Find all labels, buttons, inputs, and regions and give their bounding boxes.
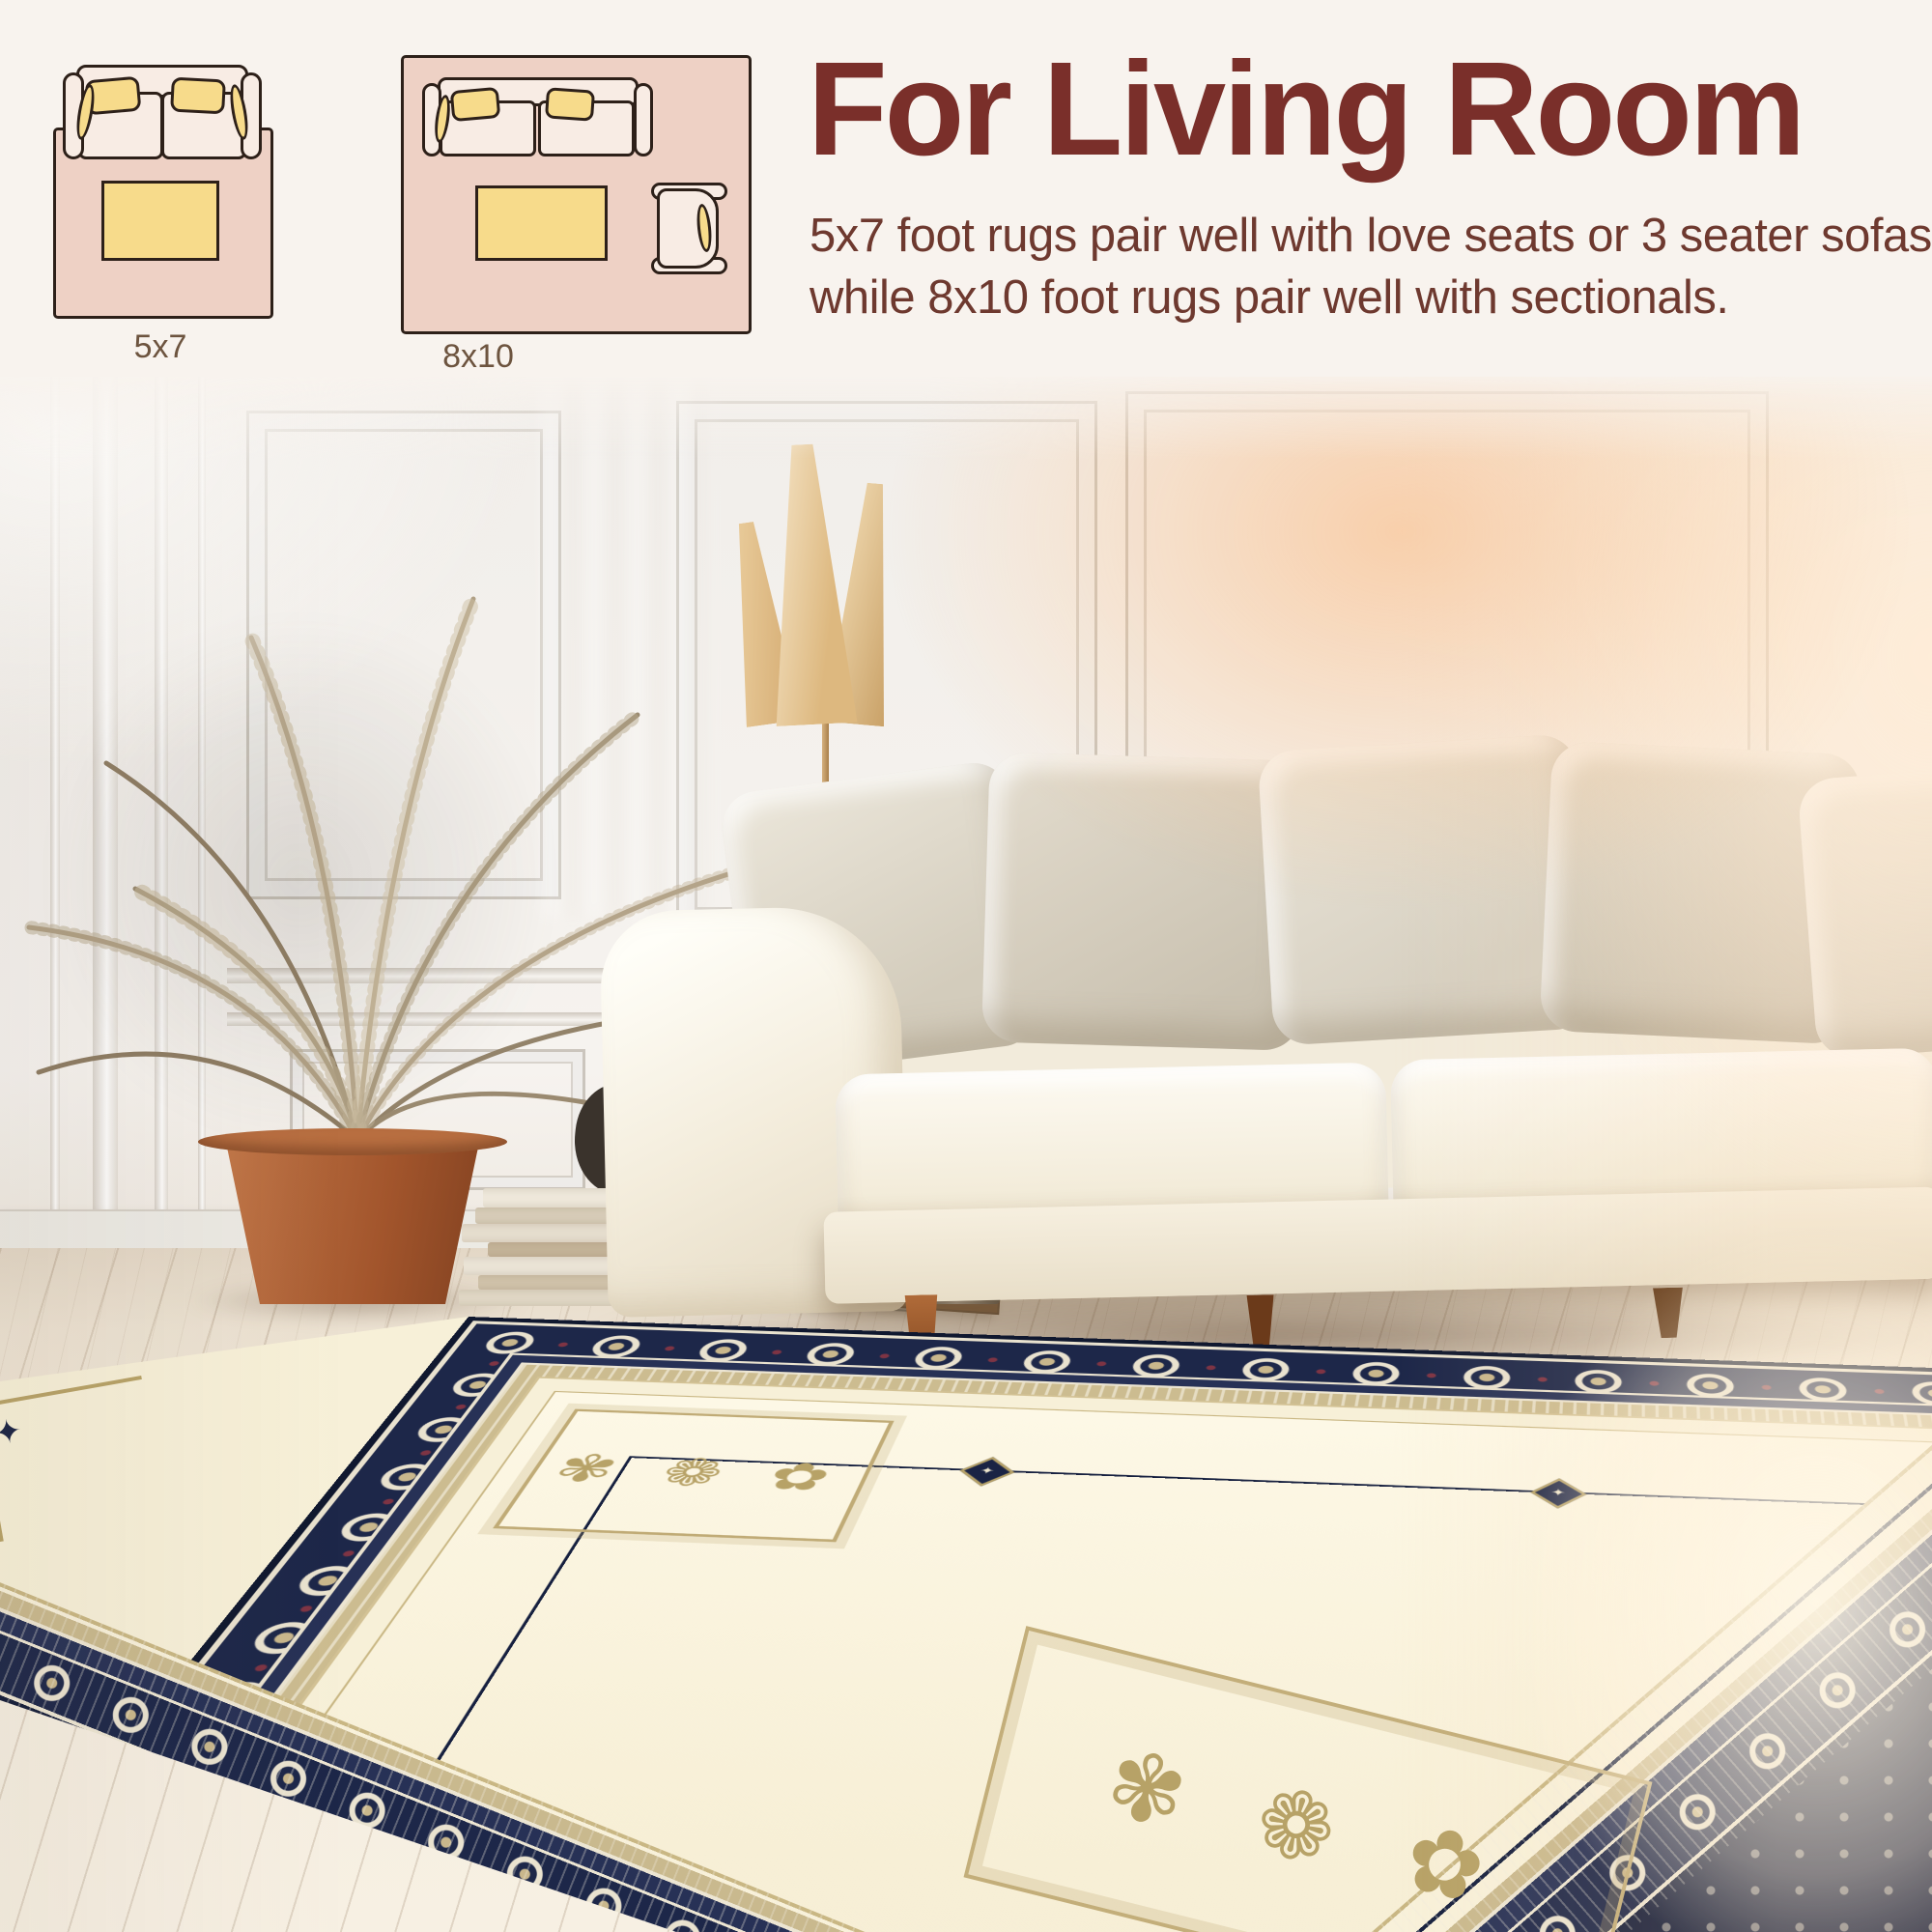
diagram-label-8x10: 8x10 — [401, 338, 555, 376]
sofa — [599, 867, 1932, 1360]
sofa-pillow — [450, 87, 501, 122]
rug-medallion-icon: ✦ — [1530, 1478, 1586, 1508]
sofa-armrest — [634, 83, 653, 156]
page-description: 5x7 foot rugs pair well with love seats … — [810, 205, 1932, 328]
diagram-armchair — [651, 183, 727, 274]
living-room-photo: ✦ ✦ ✦ ✦ ✦ ✦ ✾ ❁ ✿ ✾ ❁ ✿ ✾ ❁ ✿ ✾ ❁ ✿ — [0, 367, 1932, 1932]
rug-medallion-icon: ✦ — [959, 1457, 1014, 1486]
diagram-8x10: 8x10 — [401, 48, 749, 377]
rug-corner-ornament: ✦ — [0, 1376, 165, 1542]
diagram-loveseat — [63, 65, 262, 161]
sofa-pillow — [170, 77, 226, 115]
sofa-pillow — [1797, 758, 1932, 1060]
diagram-label-5x7: 5x7 — [53, 328, 268, 366]
page-title: For Living Room — [808, 33, 1906, 186]
diagram-coffee-table — [475, 185, 608, 261]
rug-corner-ornament: ✾ ❁ ✿ — [493, 1409, 895, 1543]
sofa-pillow — [545, 87, 595, 121]
sofa-leg — [1646, 1288, 1690, 1339]
diagram-coffee-table — [101, 181, 219, 261]
diagram-sofa — [422, 77, 653, 159]
pot-rim — [198, 1128, 507, 1155]
diagram-5x7: 5x7 — [53, 60, 268, 379]
header-band: 5x7 8x10 For Living Room 5x7 foot rugs p… — [0, 0, 1932, 377]
